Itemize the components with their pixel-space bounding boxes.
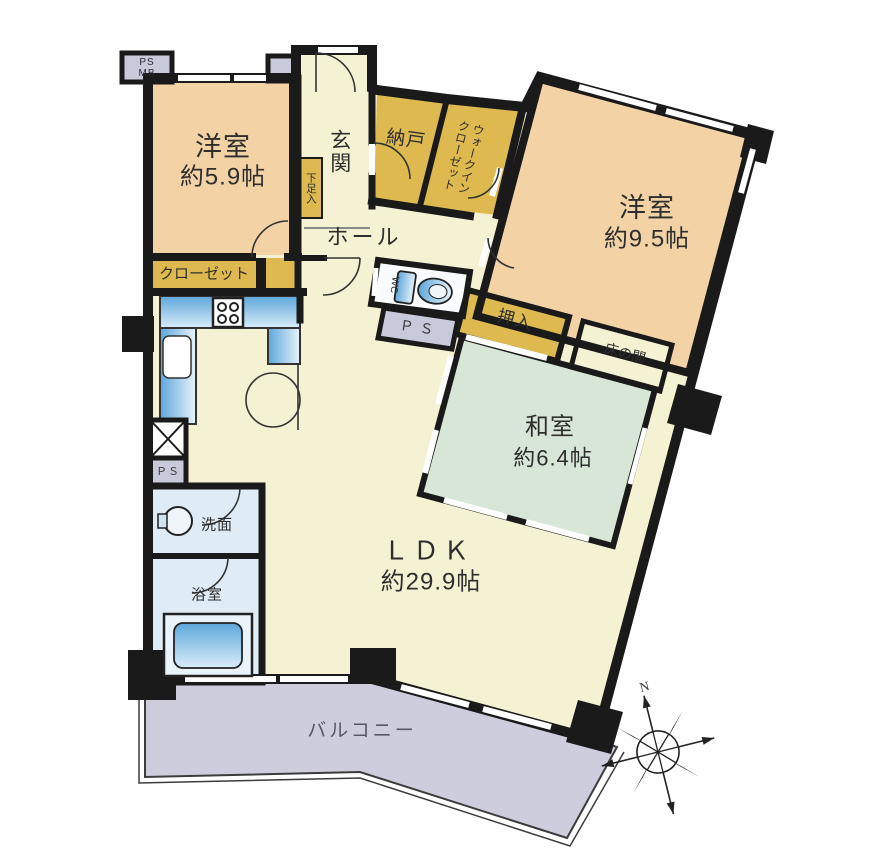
- floorplan-canvas: PS MB 洋室 約5.9帖 玄関 下足入 納戸 ウォークイン クローゼット 洋…: [0, 0, 882, 864]
- hall-label: ホール: [326, 226, 401, 251]
- western-room-2-size: 約9.5帖: [604, 227, 690, 254]
- entrance-label: 玄関: [327, 129, 351, 175]
- meter-box-label: PS MB: [139, 57, 156, 79]
- toilet-label: WC: [387, 276, 400, 294]
- balcony-label: バルコニー: [307, 720, 417, 741]
- ldk-label: ＬＤＫ: [383, 536, 473, 565]
- shoe-cabinet-label: 下足入: [304, 172, 316, 204]
- ldk-size: 約29.9帖: [381, 570, 482, 597]
- closet-label: クローゼット: [159, 267, 249, 284]
- western-room-1-label: 洋室: [195, 132, 251, 162]
- bathtub-icon: [164, 614, 252, 676]
- floorplan-drawing: [0, 0, 882, 864]
- pipe-space-left-label: ＰＳ: [156, 466, 180, 478]
- japanese-room-size: 約6.4帖: [513, 447, 593, 472]
- kitchen-sink: [163, 336, 191, 378]
- japanese-room-label: 和室: [525, 415, 575, 442]
- western-room-2-label: 洋室: [619, 193, 675, 223]
- bathroom-label: 浴室: [191, 588, 223, 605]
- laundry-box: [150, 420, 186, 458]
- western-room-1-size: 約5.9帖: [180, 165, 266, 192]
- washroom-label: 洗面: [201, 518, 233, 535]
- stove-icon: [213, 298, 243, 327]
